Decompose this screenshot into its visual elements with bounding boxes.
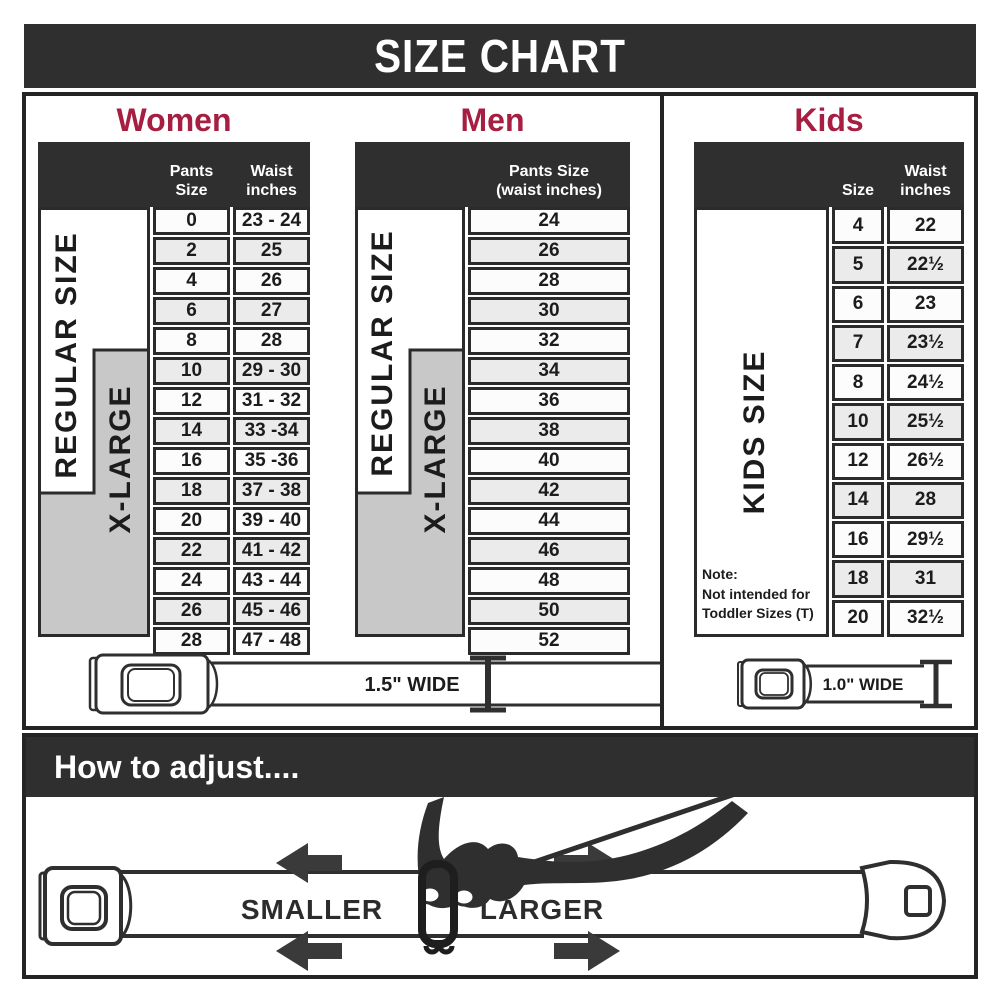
- table-cell: 32½: [887, 600, 964, 637]
- table-cell: 8: [153, 327, 230, 355]
- table-row: 824½: [832, 364, 964, 401]
- table-row: 1629½: [832, 521, 964, 558]
- size-chart-page: SIZE CHART Women Men Kids Pants Size Wai…: [0, 0, 1000, 1000]
- table-cell: 22: [887, 207, 964, 244]
- table-cell: 46: [468, 537, 630, 565]
- header-spacer: [694, 142, 829, 207]
- men-col-pants-size: Pants Size (waist inches): [468, 142, 630, 207]
- kids-col-size: Size: [832, 142, 884, 207]
- table-cell: 16: [832, 521, 884, 558]
- table-cell: 16: [153, 447, 230, 475]
- table-row: 1226½: [832, 443, 964, 480]
- table-cell: 10: [153, 357, 230, 385]
- men-fit-label-column: REGULAR SIZE X-LARGE: [355, 207, 465, 637]
- table-cell: 7: [832, 325, 884, 362]
- table-cell: 20: [153, 507, 230, 535]
- table-row: 38: [468, 417, 630, 445]
- kids-size-label: KIDS SIZE: [738, 350, 771, 515]
- table-cell: 45 - 46: [233, 597, 310, 625]
- adjust-belt-illustration: SMALLER LARGER: [26, 797, 974, 975]
- table-row: 2443 - 44: [153, 567, 310, 595]
- women-regular-size-label: REGULAR SIZE: [50, 231, 83, 478]
- adjust-illustration-area: SMALLER LARGER: [26, 797, 974, 975]
- table-cell: 0: [153, 207, 230, 235]
- table-cell: 44: [468, 507, 630, 535]
- table-row: 225: [153, 237, 310, 265]
- table-cell: 36: [468, 387, 630, 415]
- table-row: 34: [468, 357, 630, 385]
- table-row: 2039 - 40: [153, 507, 310, 535]
- kids-heading: Kids: [694, 102, 964, 139]
- table-row: 023 - 24: [153, 207, 310, 235]
- table-row: 36: [468, 387, 630, 415]
- table-row: 1837 - 38: [153, 477, 310, 505]
- table-row: 44: [468, 507, 630, 535]
- table-cell: 14: [153, 417, 230, 445]
- header-spacer: [355, 142, 465, 207]
- table-cell: 43 - 44: [233, 567, 310, 595]
- table-cell: 23 - 24: [233, 207, 310, 235]
- table-row: 40: [468, 447, 630, 475]
- table-cell: 52: [468, 627, 630, 655]
- adult-belt-illustration: 1.5" WIDE: [60, 652, 660, 716]
- table-cell: 4: [832, 207, 884, 244]
- men-heading: Men: [355, 102, 630, 139]
- table-row: 1831: [832, 560, 964, 597]
- kids-belt-width-label: 1.0" WIDE: [823, 675, 904, 694]
- tongue-slot: [906, 887, 930, 915]
- table-row: 627: [153, 297, 310, 325]
- table-cell: 25: [233, 237, 310, 265]
- women-col-waist: Waist inches: [233, 142, 310, 207]
- table-cell: 26: [468, 237, 630, 265]
- men-table-body: 242628303234363840424446485052: [468, 207, 630, 637]
- table-row: 1433 -34: [153, 417, 310, 445]
- header-spacer: [38, 142, 150, 207]
- arrow-left-icon: [276, 843, 342, 883]
- table-row: 1428: [832, 482, 964, 519]
- table-row: 623: [832, 286, 964, 323]
- table-cell: 23: [887, 286, 964, 323]
- table-row: 723½: [832, 325, 964, 362]
- table-row: 1029 - 30: [153, 357, 310, 385]
- men-size-table: Pants Size (waist inches) REGULAR SIZE X…: [355, 142, 630, 637]
- table-cell: 26: [233, 267, 310, 295]
- table-cell: 2: [153, 237, 230, 265]
- table-cell: 26½: [887, 443, 964, 480]
- table-cell: 20: [832, 600, 884, 637]
- kids-table-body: 422522½623723½824½1025½1226½14281629½183…: [832, 207, 964, 637]
- seatbelt-buckle-icon: [738, 660, 811, 708]
- table-cell: 50: [468, 597, 630, 625]
- table-row: 1025½: [832, 403, 964, 440]
- table-row: 46: [468, 537, 630, 565]
- width-measure-icon: [470, 658, 506, 710]
- kids-fit-label-column: KIDS SIZE Note: Not intended for Toddler…: [694, 207, 829, 637]
- men-regular-size-label: REGULAR SIZE: [366, 229, 399, 476]
- table-cell: 10: [832, 403, 884, 440]
- seatbelt-buckle-icon: [90, 655, 217, 713]
- table-row: 48: [468, 567, 630, 595]
- table-cell: 18: [153, 477, 230, 505]
- table-row: 42: [468, 477, 630, 505]
- kids-col-waist: Waist inches: [887, 142, 964, 207]
- table-row: 522½: [832, 246, 964, 283]
- women-table-header: Pants Size Waist inches: [38, 142, 310, 207]
- seatbelt-buckle-icon: [40, 868, 131, 944]
- table-cell: 41 - 42: [233, 537, 310, 565]
- table-cell: 6: [832, 286, 884, 323]
- title-bar: SIZE CHART: [24, 24, 976, 88]
- kids-table-header: Size Waist inches: [694, 142, 964, 207]
- table-row: 828: [153, 327, 310, 355]
- table-cell: 32: [468, 327, 630, 355]
- men-x-large-label: X-LARGE: [419, 385, 452, 534]
- table-row: 28: [468, 267, 630, 295]
- table-row: 2847 - 48: [153, 627, 310, 655]
- how-to-adjust-heading: How to adjust....: [26, 737, 974, 797]
- table-cell: 23½: [887, 325, 964, 362]
- table-row: 2645 - 46: [153, 597, 310, 625]
- table-cell: 34: [468, 357, 630, 385]
- table-cell: 29 - 30: [233, 357, 310, 385]
- table-row: 2241 - 42: [153, 537, 310, 565]
- table-cell: 31: [887, 560, 964, 597]
- adult-belt-width-label: 1.5" WIDE: [364, 674, 459, 696]
- women-x-large-label: X-LARGE: [104, 385, 137, 534]
- table-cell: 28: [153, 627, 230, 655]
- table-cell: 33 -34: [233, 417, 310, 445]
- kids-size-table: Size Waist inches KIDS SIZE Note: Not in…: [694, 142, 964, 637]
- table-cell: 18: [832, 560, 884, 597]
- page-title: SIZE CHART: [374, 29, 626, 83]
- women-col-pants-size: Pants Size: [153, 142, 230, 207]
- table-cell: 28: [233, 327, 310, 355]
- width-measure-icon: [920, 662, 952, 706]
- table-cell: 31 - 32: [233, 387, 310, 415]
- table-cell: 39 - 40: [233, 507, 310, 535]
- smaller-label: SMALLER: [241, 894, 383, 925]
- table-cell: 26: [153, 597, 230, 625]
- kids-note-line-1: Note:: [702, 566, 738, 582]
- table-cell: 22½: [887, 246, 964, 283]
- table-row: 422: [832, 207, 964, 244]
- women-size-table: Pants Size Waist inches REGULAR SIZE X-L…: [38, 142, 310, 637]
- kids-note-line-3: Toddler Sizes (T): [702, 605, 814, 621]
- kids-note-line-2: Not intended for: [702, 586, 811, 602]
- table-cell: 25½: [887, 403, 964, 440]
- table-cell: 28: [468, 267, 630, 295]
- table-cell: 29½: [887, 521, 964, 558]
- table-cell: 35 -36: [233, 447, 310, 475]
- table-cell: 5: [832, 246, 884, 283]
- section-divider: [660, 96, 664, 726]
- table-cell: 27: [233, 297, 310, 325]
- table-cell: 48: [468, 567, 630, 595]
- women-fit-label-column: REGULAR SIZE X-LARGE: [38, 207, 150, 637]
- table-cell: 4: [153, 267, 230, 295]
- table-row: 32: [468, 327, 630, 355]
- table-cell: 24: [153, 567, 230, 595]
- table-row: 426: [153, 267, 310, 295]
- women-table-body: 023 - 242254266278281029 - 301231 - 3214…: [153, 207, 310, 637]
- table-row: 1635 -36: [153, 447, 310, 475]
- table-cell: 24½: [887, 364, 964, 401]
- table-cell: 12: [832, 443, 884, 480]
- men-table-header: Pants Size (waist inches): [355, 142, 630, 207]
- table-cell: 47 - 48: [233, 627, 310, 655]
- table-cell: 28: [887, 482, 964, 519]
- table-cell: 24: [468, 207, 630, 235]
- table-cell: 30: [468, 297, 630, 325]
- table-row: 1231 - 32: [153, 387, 310, 415]
- size-chart-panel: Women Men Kids Pants Size Waist inches R…: [22, 92, 978, 730]
- table-cell: 40: [468, 447, 630, 475]
- table-cell: 6: [153, 297, 230, 325]
- table-cell: 8: [832, 364, 884, 401]
- kids-belt-illustration: 1.0" WIDE: [732, 652, 972, 716]
- table-cell: 14: [832, 482, 884, 519]
- table-row: 50: [468, 597, 630, 625]
- table-cell: 22: [153, 537, 230, 565]
- table-row: 2032½: [832, 600, 964, 637]
- table-row: 26: [468, 237, 630, 265]
- table-cell: 12: [153, 387, 230, 415]
- table-row: 30: [468, 297, 630, 325]
- table-row: 52: [468, 627, 630, 655]
- women-heading: Women: [38, 102, 310, 139]
- table-cell: 38: [468, 417, 630, 445]
- table-cell: 37 - 38: [233, 477, 310, 505]
- table-row: 24: [468, 207, 630, 235]
- table-cell: 42: [468, 477, 630, 505]
- how-to-adjust-panel: How to adjust....: [22, 733, 978, 979]
